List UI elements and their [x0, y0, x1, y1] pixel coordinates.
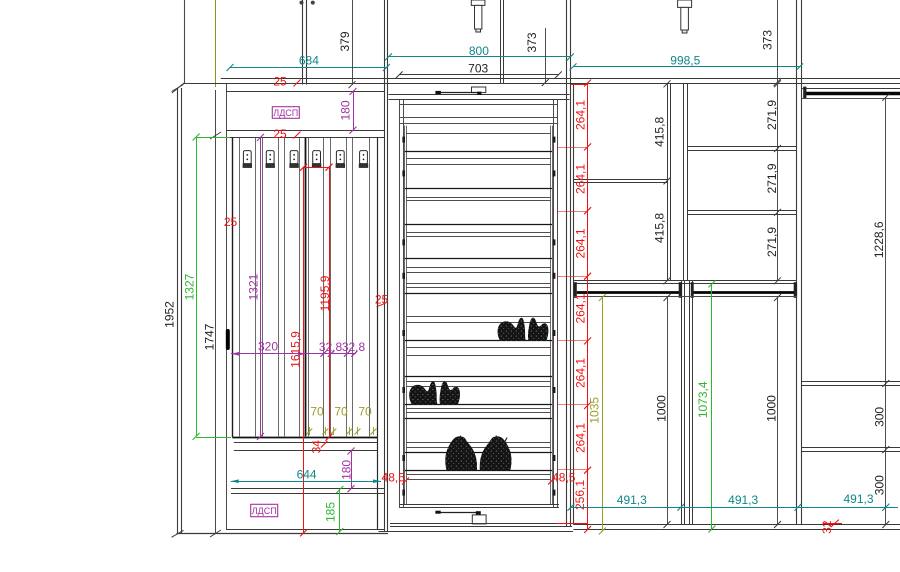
svg-text:180: 180	[339, 100, 353, 120]
svg-text:32,8: 32,8	[319, 340, 343, 354]
svg-text:264,1: 264,1	[574, 100, 588, 130]
svg-text:264,1: 264,1	[574, 293, 588, 323]
svg-text:271,9: 271,9	[765, 100, 779, 130]
svg-text:ЛДСП: ЛДСП	[273, 108, 298, 118]
svg-text:320: 320	[258, 339, 278, 353]
svg-text:703: 703	[468, 62, 488, 76]
svg-text:998,5: 998,5	[670, 54, 700, 68]
svg-text:185: 185	[323, 502, 337, 522]
svg-text:373: 373	[525, 32, 539, 52]
svg-text:491,3: 491,3	[843, 492, 873, 506]
svg-text:264,1: 264,1	[574, 423, 588, 453]
svg-text:70: 70	[358, 404, 372, 418]
svg-text:1321: 1321	[246, 273, 260, 300]
svg-text:271,9: 271,9	[765, 163, 779, 193]
svg-text:1327: 1327	[182, 273, 196, 300]
svg-text:1035: 1035	[588, 397, 602, 424]
svg-text:1000: 1000	[655, 395, 669, 422]
svg-text:1747: 1747	[203, 323, 217, 350]
svg-text:264,1: 264,1	[574, 228, 588, 258]
svg-text:1952: 1952	[163, 301, 177, 328]
svg-text:ЛДСП: ЛДСП	[252, 506, 277, 516]
svg-text:34: 34	[310, 440, 324, 454]
svg-text:1073,4: 1073,4	[696, 381, 710, 418]
svg-text:1615,9: 1615,9	[289, 331, 303, 368]
svg-text:25: 25	[273, 75, 287, 89]
svg-text:1000: 1000	[765, 395, 779, 422]
svg-text:644: 644	[297, 468, 317, 482]
svg-text:684: 684	[299, 54, 319, 68]
svg-text:32: 32	[820, 520, 834, 534]
svg-text:70: 70	[310, 404, 324, 418]
svg-text:48,5: 48,5	[382, 470, 406, 484]
svg-text:300: 300	[872, 407, 886, 427]
svg-text:415,8: 415,8	[653, 213, 667, 243]
svg-text:256,1: 256,1	[573, 480, 587, 510]
svg-text:1195,9: 1195,9	[318, 275, 332, 311]
svg-text:1228,6: 1228,6	[872, 221, 886, 258]
svg-text:379: 379	[338, 31, 352, 51]
svg-text:180: 180	[339, 460, 353, 480]
svg-text:32,8: 32,8	[342, 340, 366, 354]
svg-text:264,1: 264,1	[574, 164, 588, 194]
svg-text:491,3: 491,3	[728, 493, 758, 507]
svg-text:415,8: 415,8	[653, 117, 667, 147]
svg-text:25: 25	[224, 215, 238, 229]
svg-text:25: 25	[273, 127, 287, 141]
svg-text:300: 300	[872, 475, 886, 495]
svg-text:264,1: 264,1	[574, 358, 588, 388]
svg-text:271,9: 271,9	[765, 227, 779, 257]
svg-text:373: 373	[761, 30, 775, 50]
svg-text:491,3: 491,3	[617, 493, 647, 507]
svg-text:70: 70	[334, 404, 348, 418]
svg-text:800: 800	[469, 44, 489, 58]
